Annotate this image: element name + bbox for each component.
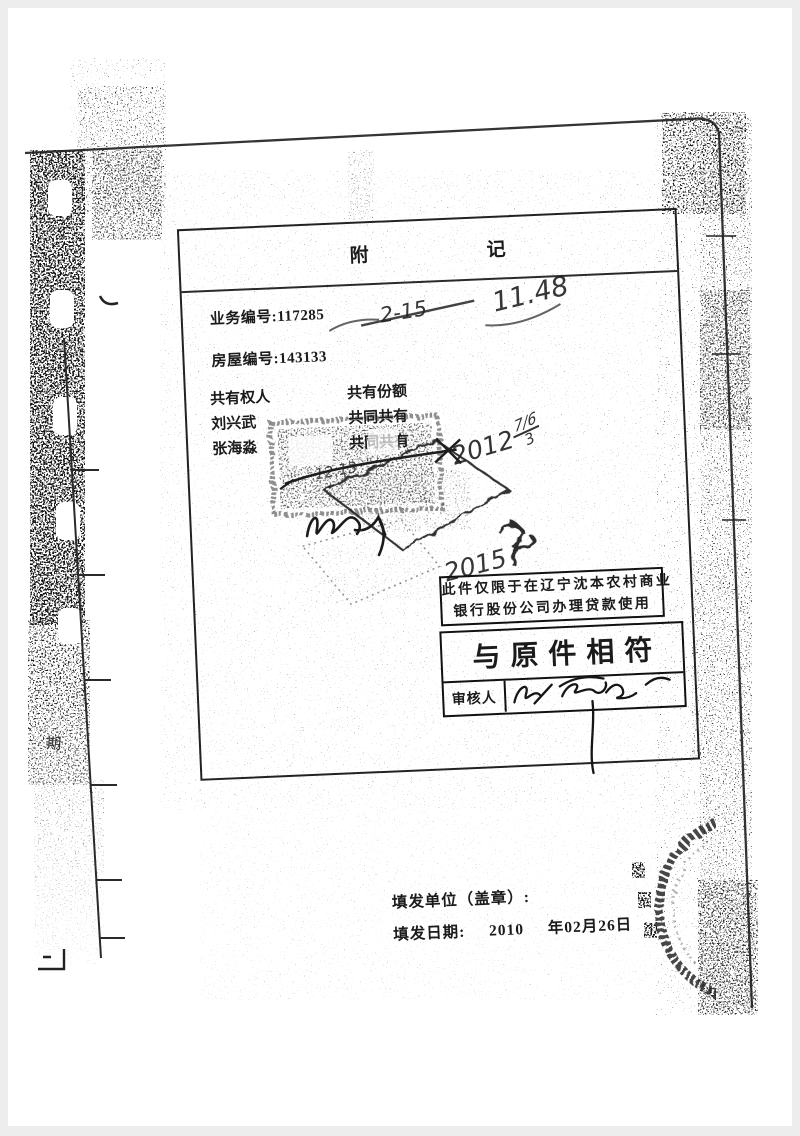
reviewer-signatures	[505, 673, 682, 710]
issuer-line: 填发单位（盖章）:	[391, 885, 530, 913]
date-gap	[529, 933, 543, 934]
ink-scribble	[488, 516, 546, 570]
issue-date-year: 2010	[489, 921, 525, 939]
date-gap	[470, 936, 484, 937]
scanned-document: { "colors": { "frame": "#ededed", "paper…	[0, 0, 800, 1136]
reviewer-signature-cell	[505, 673, 684, 712]
remark-section-box: 附 记 业务编号:117285 房屋编号:143133 共有权人 共有份额 刘兴…	[177, 208, 700, 781]
reviewer-label: 审核人	[444, 681, 507, 715]
remark-title-char-2: 记	[486, 234, 507, 262]
house-number-line: 房屋编号:143133	[211, 345, 327, 371]
business-number-line: 业务编号:117285	[209, 303, 324, 329]
verification-box: 与原件相符 审核人	[439, 621, 686, 717]
handwritten-time-note: 11.48	[489, 270, 571, 318]
bank-restriction-box: 此件仅限于在辽宁沈本农村商业 银行股份公司办理贷款使用	[439, 567, 665, 627]
remark-title-char-1: 附	[349, 240, 370, 268]
issue-date-monthday: 年02月26日	[547, 916, 632, 937]
issue-date-label: 填发日期:	[393, 924, 466, 944]
booklet-page: 附 记 业务编号:117285 房屋编号:143133 共有权人 共有份额 刘兴…	[18, 86, 800, 1057]
issue-date-line: 填发日期: 2010 年02月26日	[393, 912, 633, 944]
handwritten-top-note: 2-15 11.48	[321, 274, 583, 347]
